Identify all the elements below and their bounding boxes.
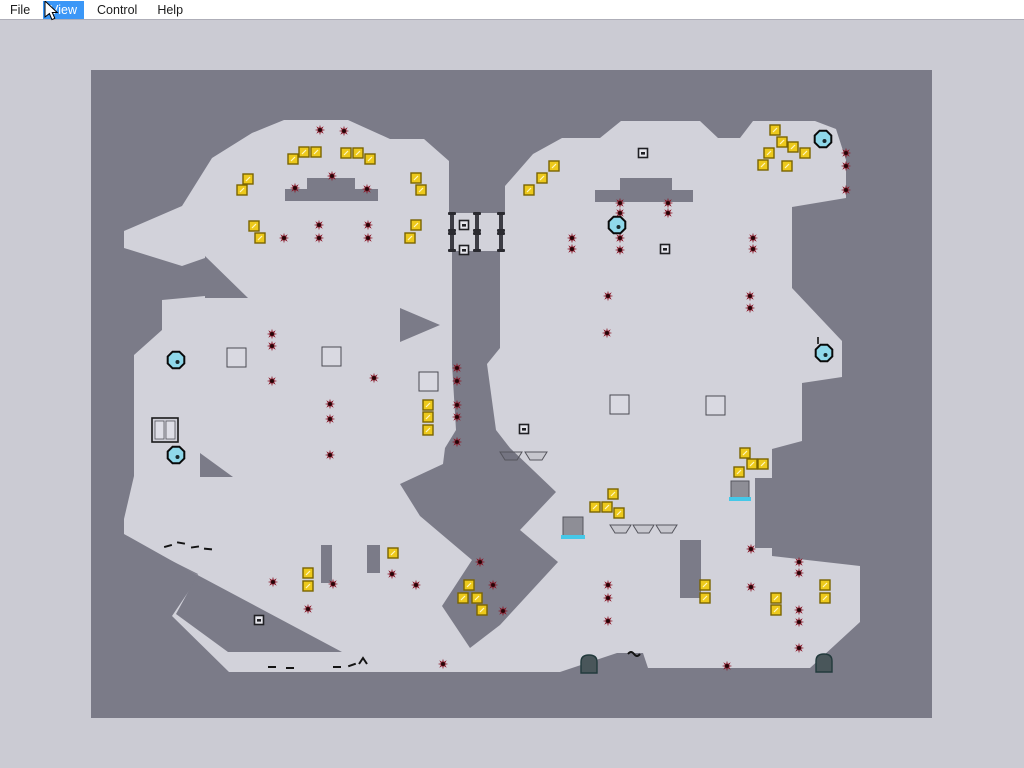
door-cap (448, 232, 456, 235)
mine-core (478, 560, 482, 564)
terrain-solid (620, 178, 672, 190)
mine-core (455, 379, 459, 383)
mine-core (618, 248, 622, 252)
turret (816, 654, 832, 672)
terrain-solid (367, 545, 380, 573)
mine-core (749, 547, 753, 551)
door-segment (499, 214, 503, 230)
mouse-cursor-icon (44, 1, 60, 23)
door-switch-dot (462, 249, 466, 252)
mine-core (570, 236, 574, 240)
door-cap (473, 229, 481, 232)
door-switch-dot (641, 152, 645, 155)
mine-core (797, 608, 801, 612)
mine-core (666, 211, 670, 215)
mine-core (328, 453, 332, 457)
thwump (731, 481, 749, 498)
door-cap (448, 249, 456, 252)
game-viewport[interactable]: Game Over: Out of Time! (press Jump to r… (91, 70, 932, 718)
mine-core (751, 236, 755, 240)
drone-eye (617, 225, 621, 229)
door-cap (497, 232, 505, 235)
ninja-debris (333, 666, 341, 668)
terrain-solid (755, 478, 775, 548)
mine-core (748, 306, 752, 310)
mine-core (317, 236, 321, 240)
bounce-block (610, 395, 629, 414)
mine-core (455, 415, 459, 419)
mine-core (666, 201, 670, 205)
mine-core (414, 583, 418, 587)
menu-item-file[interactable]: File (3, 1, 37, 19)
door-cap (473, 249, 481, 252)
door-switch-dot (663, 248, 667, 251)
menu-bar: FileViewControlHelp (0, 0, 1024, 20)
door-cap (497, 212, 505, 215)
mine-core (618, 201, 622, 205)
terrain-solid (321, 545, 332, 583)
mine-core (751, 247, 755, 251)
bounce-block (322, 347, 341, 366)
mine-core (844, 188, 848, 192)
turret (581, 655, 597, 673)
door-switch-dot (462, 224, 466, 227)
mine-core (618, 211, 622, 215)
terrain-solid (307, 178, 355, 189)
door-segment (450, 214, 454, 230)
door-switch-dot (522, 428, 526, 431)
mine-core (455, 440, 459, 444)
mine-core (328, 417, 332, 421)
mine-core (455, 366, 459, 370)
ninja-debris (268, 666, 276, 668)
mine-core (306, 607, 310, 611)
door-segment (450, 234, 454, 250)
mine-core (844, 151, 848, 155)
mine-core (270, 379, 274, 383)
mine-core (366, 223, 370, 227)
thwump-face (561, 535, 585, 539)
mine-core (797, 560, 801, 564)
mine-core (797, 620, 801, 624)
mine-core (330, 174, 334, 178)
bounce-block (419, 372, 438, 391)
drone-eye (176, 360, 180, 364)
drone-enemy (815, 131, 832, 148)
mine-core (317, 223, 321, 227)
mine-core (441, 662, 445, 666)
mine-core (844, 164, 848, 168)
terrain-solid (285, 189, 378, 201)
bounce-block (227, 348, 246, 367)
drone-enemy (609, 217, 626, 234)
level-map (91, 70, 932, 718)
mine-core (606, 583, 610, 587)
mine-core (366, 236, 370, 240)
door-cap (473, 212, 481, 215)
drone-eye (824, 353, 828, 357)
door-cap (497, 229, 505, 232)
door-segment (475, 234, 479, 250)
mine-core (606, 619, 610, 623)
mine-core (318, 128, 322, 132)
bounce-block (706, 396, 725, 415)
mine-core (570, 247, 574, 251)
terrain-solid (595, 190, 693, 202)
door-segment (475, 214, 479, 230)
mine-core (331, 582, 335, 586)
drone-enemy (816, 345, 833, 362)
menu-item-control[interactable]: Control (90, 1, 144, 19)
window-background: Game Over: Out of Time! (press Jump to r… (0, 20, 1024, 768)
exit-door-panel (166, 421, 175, 439)
mine-core (270, 344, 274, 348)
door-cap (473, 232, 481, 235)
mine-core (797, 571, 801, 575)
mine-core (748, 294, 752, 298)
mine-core (797, 646, 801, 650)
ninja-debris (286, 667, 294, 669)
drone-enemy (168, 352, 185, 369)
mine-core (749, 585, 753, 589)
mine-core (365, 187, 369, 191)
exit-door-panel (155, 421, 164, 439)
door-segment (499, 234, 503, 250)
door-switch-dot (257, 619, 261, 622)
door-cap (497, 249, 505, 252)
mine-core (342, 129, 346, 133)
mine-core (501, 609, 505, 613)
door-cap (448, 229, 456, 232)
mine-core (455, 403, 459, 407)
door-cap (448, 212, 456, 215)
mine-core (328, 402, 332, 406)
thwump-face (729, 497, 751, 501)
terrain-solid (680, 540, 701, 598)
mine-core (725, 664, 729, 668)
mine-core (372, 376, 376, 380)
drone-enemy (168, 447, 185, 464)
mine-core (271, 580, 275, 584)
drone-eye (176, 455, 180, 459)
thwump (563, 517, 583, 536)
mine-core (605, 331, 609, 335)
mine-core (270, 332, 274, 336)
mine-core (282, 236, 286, 240)
menu-item-help[interactable]: Help (150, 1, 190, 19)
mine-core (390, 572, 394, 576)
drone-eye (823, 139, 827, 143)
mine-core (606, 294, 610, 298)
mine-core (618, 236, 622, 240)
mine-core (491, 583, 495, 587)
mine-core (606, 596, 610, 600)
ninja-debris (817, 337, 819, 344)
mine-core (293, 186, 297, 190)
